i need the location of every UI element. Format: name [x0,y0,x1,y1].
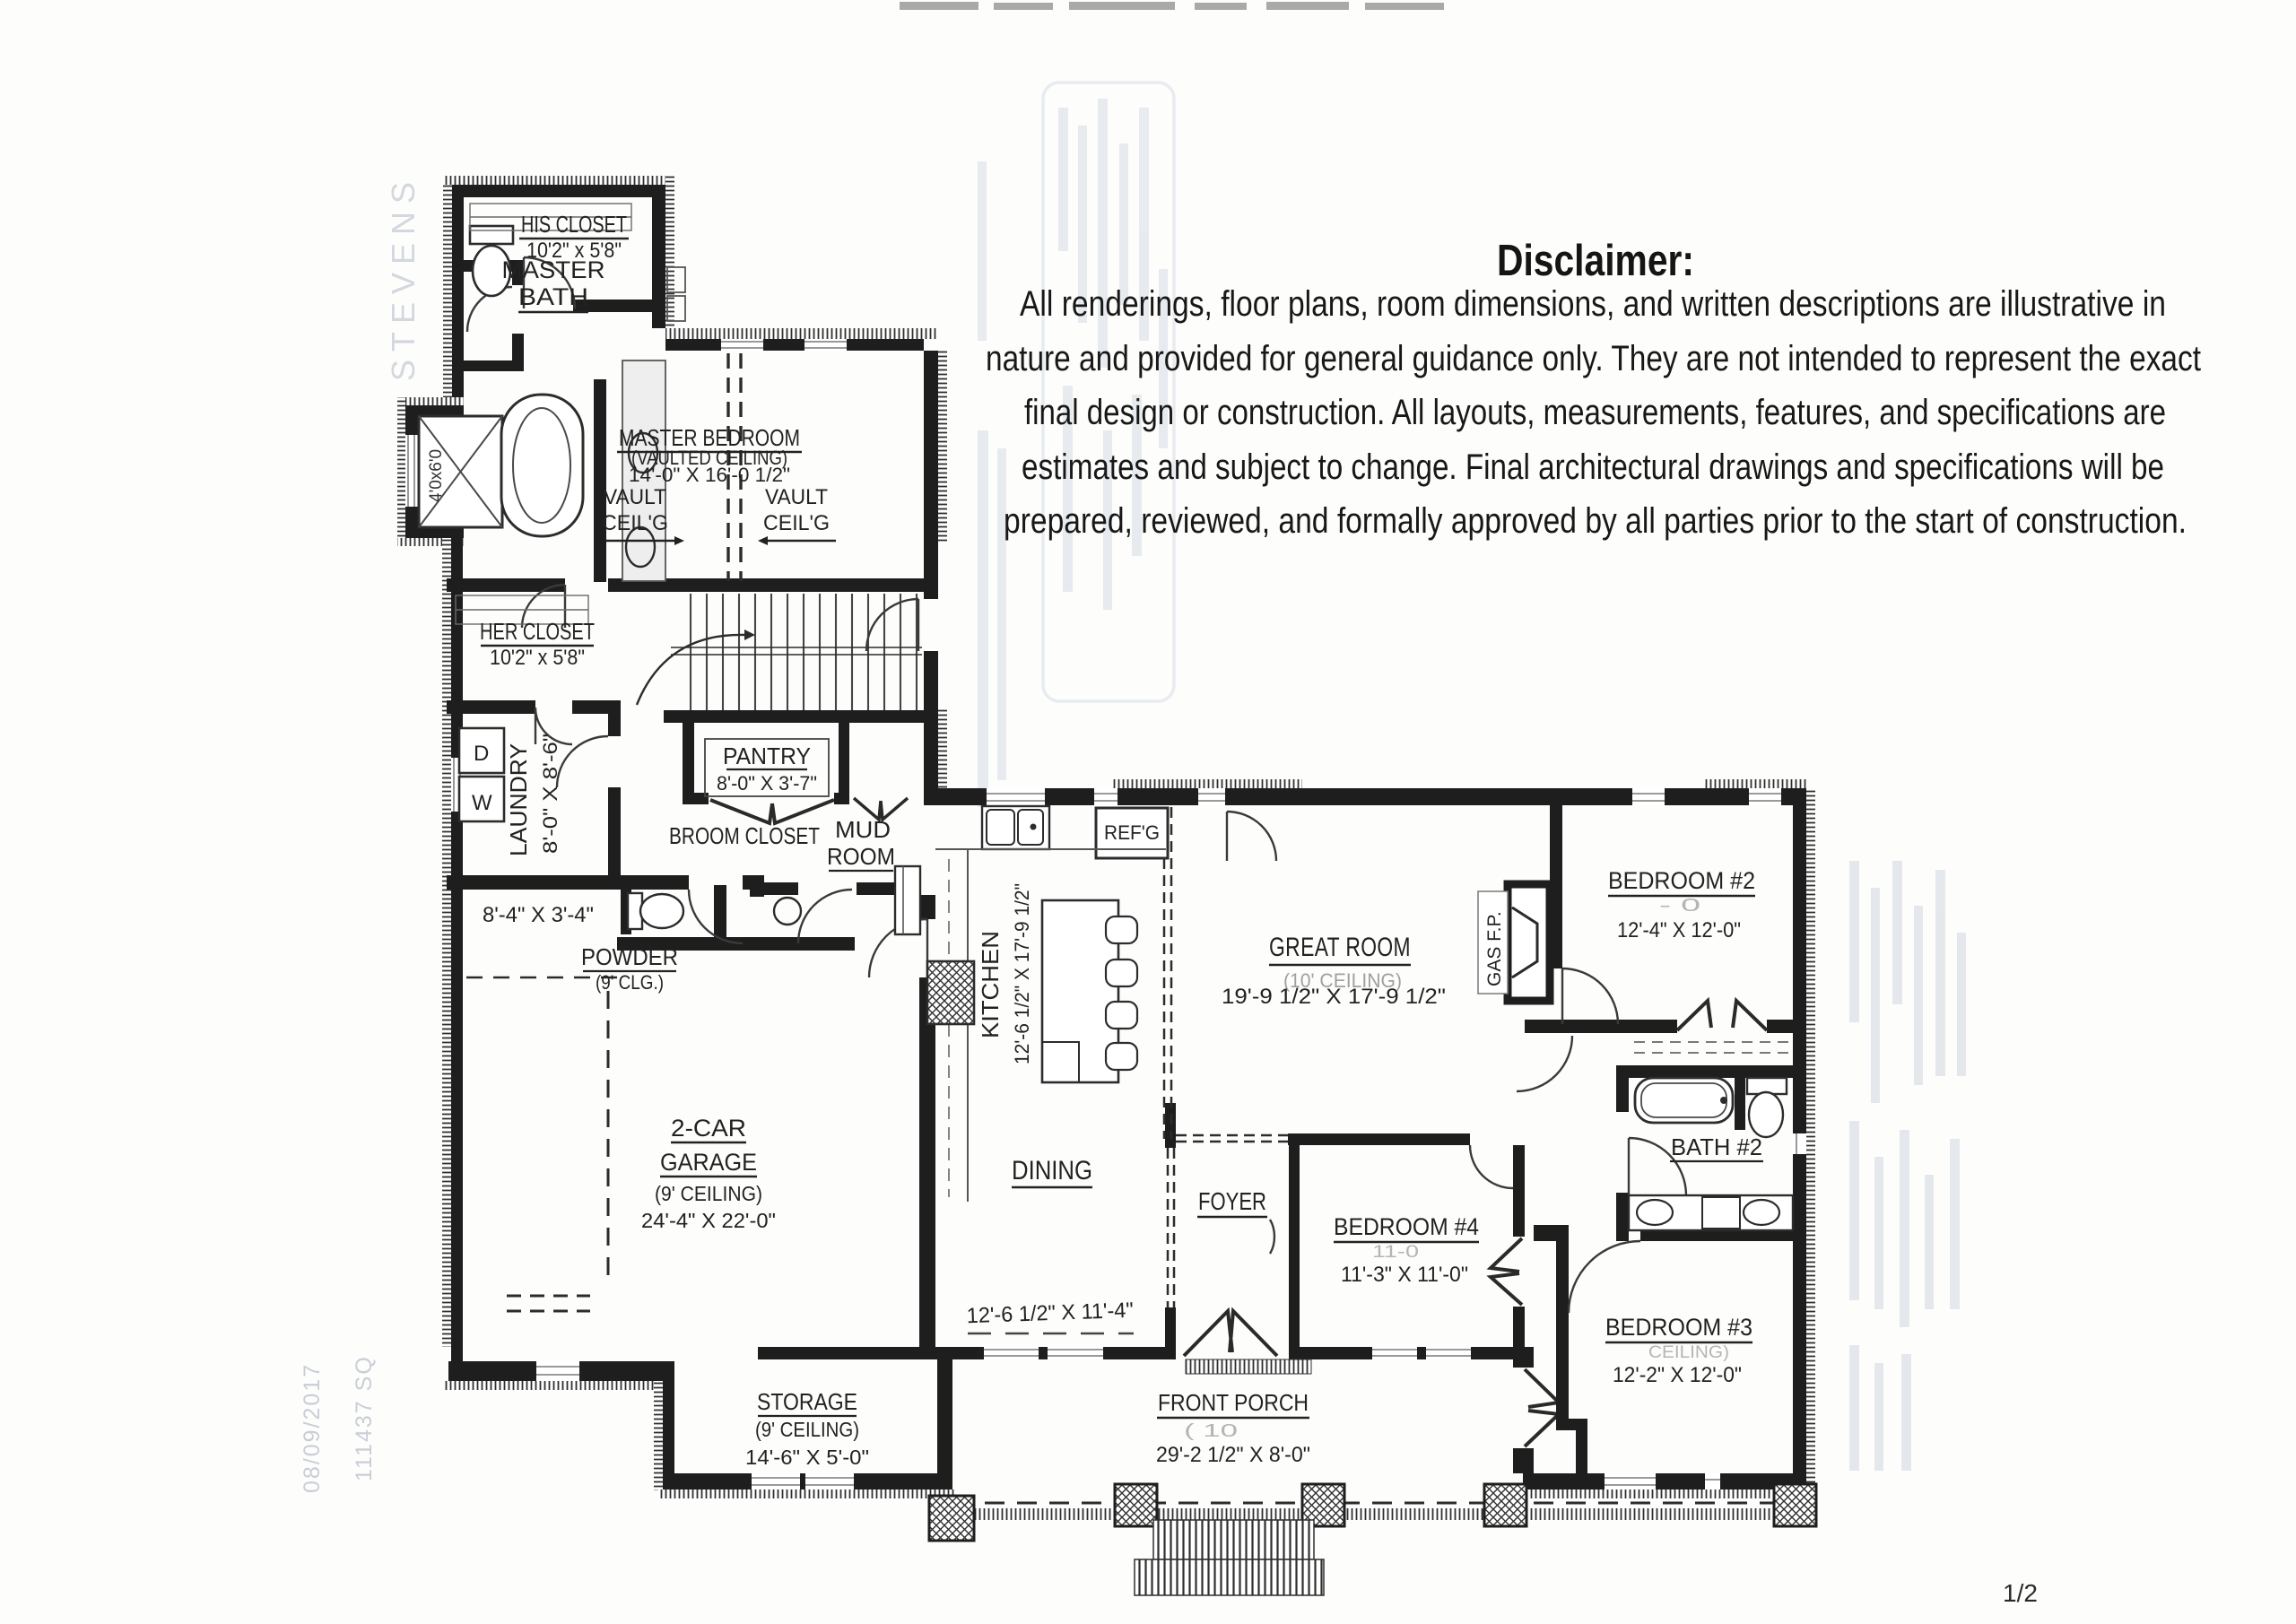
svg-text:Disclaimer:: Disclaimer: [1497,237,1694,285]
svg-text:08/09/2017: 08/09/2017 [300,1363,325,1493]
svg-text:111437 SQ: 111437 SQ [352,1355,377,1481]
svg-text:estimates and subject to chang: estimates and subject to change. Final a… [1022,447,2164,487]
svg-text:MUD: MUD [835,816,891,843]
svg-text:GREAT ROOM: GREAT ROOM [1269,933,1411,962]
svg-text:LAUNDRY: LAUNDRY [505,743,532,856]
svg-text:BEDROOM #2: BEDROOM #2 [1608,867,1755,894]
svg-text:BATH #2: BATH #2 [1671,1133,1762,1160]
svg-text:W: W [472,791,492,815]
svg-text:8'-0" X 8'-6": 8'-0" X 8'-6" [539,734,561,854]
svg-text:8'-0" X 3'-7": 8'-0" X 3'-7" [717,772,817,795]
svg-text:CEIL'G: CEIL'G [763,511,830,535]
svg-text:12'-2" X 12'-0": 12'-2" X 12'-0" [1613,1363,1742,1387]
svg-text:11'-3" X 11'-0": 11'-3" X 11'-0" [1341,1263,1468,1287]
svg-text:REF'G: REF'G [1104,821,1160,844]
svg-text:10'2" x 5'8": 10'2" x 5'8" [490,646,585,670]
svg-text:HER CLOSET: HER CLOSET [480,618,595,645]
svg-text:ROOM: ROOM [827,843,895,870]
svg-text:VAULT: VAULT [765,485,828,509]
svg-text:BEDROOM #4: BEDROOM #4 [1334,1213,1479,1240]
svg-text:- 0: - 0 [1659,896,1700,916]
svg-text:12'-6 1/2" X 17'-9 1/2": 12'-6 1/2" X 17'-9 1/2" [1011,883,1033,1064]
svg-text:2-CAR: 2-CAR [671,1115,746,1142]
svg-text:POWDER: POWDER [581,943,678,970]
svg-text:24'-4" X 22'-0": 24'-4" X 22'-0" [641,1209,776,1232]
svg-text:(9' CLG.): (9' CLG.) [596,971,664,994]
svg-text:PANTRY: PANTRY [723,743,811,769]
svg-text:1/2: 1/2 [2003,1579,2038,1607]
svg-text:CEILING): CEILING) [1648,1343,1729,1362]
svg-text:29'-2 1/2" X 8'-0": 29'-2 1/2" X 8'-0" [1156,1443,1310,1467]
svg-text:KITCHEN: KITCHEN [977,931,1004,1038]
svg-text:BATH: BATH [518,283,588,310]
svg-text:D: D [474,742,489,766]
svg-text:19'-9 1/2" X 17'-9 1/2": 19'-9 1/2" X 17'-9 1/2" [1222,985,1446,1009]
svg-text:STORAGE: STORAGE [757,1388,857,1415]
svg-text:( 10: ( 10 [1184,1421,1238,1441]
svg-text:DINING: DINING [1012,1156,1092,1185]
svg-text:STEVENS: STEVENS [385,174,422,381]
svg-text:MASTER: MASTER [502,256,605,283]
svg-text:GARAGE: GARAGE [660,1149,757,1176]
svg-text:8'-4" X 3'-4": 8'-4" X 3'-4" [483,903,594,927]
svg-text:11-0: 11-0 [1372,1243,1419,1262]
svg-text:VAULT: VAULT [604,485,666,509]
svg-text:CEIL'G: CEIL'G [602,511,668,535]
svg-text:(9' CEILING): (9' CEILING) [755,1418,859,1441]
svg-text:14'-0" X 16'-0 1/2": 14'-0" X 16'-0 1/2" [629,464,790,486]
svg-text:HIS CLOSET: HIS CLOSET [521,211,627,238]
svg-text:(9' CEILING): (9' CEILING) [655,1182,762,1205]
svg-text:14'-6" X 5'-0": 14'-6" X 5'-0" [745,1446,869,1469]
svg-text:final design or construction.: final design or construction. All layout… [1024,393,2166,432]
svg-text:All renderings, floor plans, r: All renderings, floor plans, room dimens… [1020,284,2166,324]
svg-text:BEDROOM #3: BEDROOM #3 [1605,1314,1752,1341]
svg-text:FRONT PORCH: FRONT PORCH [1158,1389,1309,1416]
svg-text:4'0x6'0: 4'0x6'0 [427,449,446,502]
svg-text:GAS F.P.: GAS F.P. [1484,911,1505,986]
svg-text:12'-4" X 12'-0": 12'-4" X 12'-0" [1617,918,1741,942]
svg-text:BROOM CLOSET: BROOM CLOSET [669,822,820,849]
svg-text:FOYER: FOYER [1198,1187,1266,1215]
svg-text:nature and provided for genera: nature and provided for general guidance… [986,339,2201,378]
svg-text:prepared, reviewed, and formal: prepared, reviewed, and formally approve… [1004,501,2187,541]
